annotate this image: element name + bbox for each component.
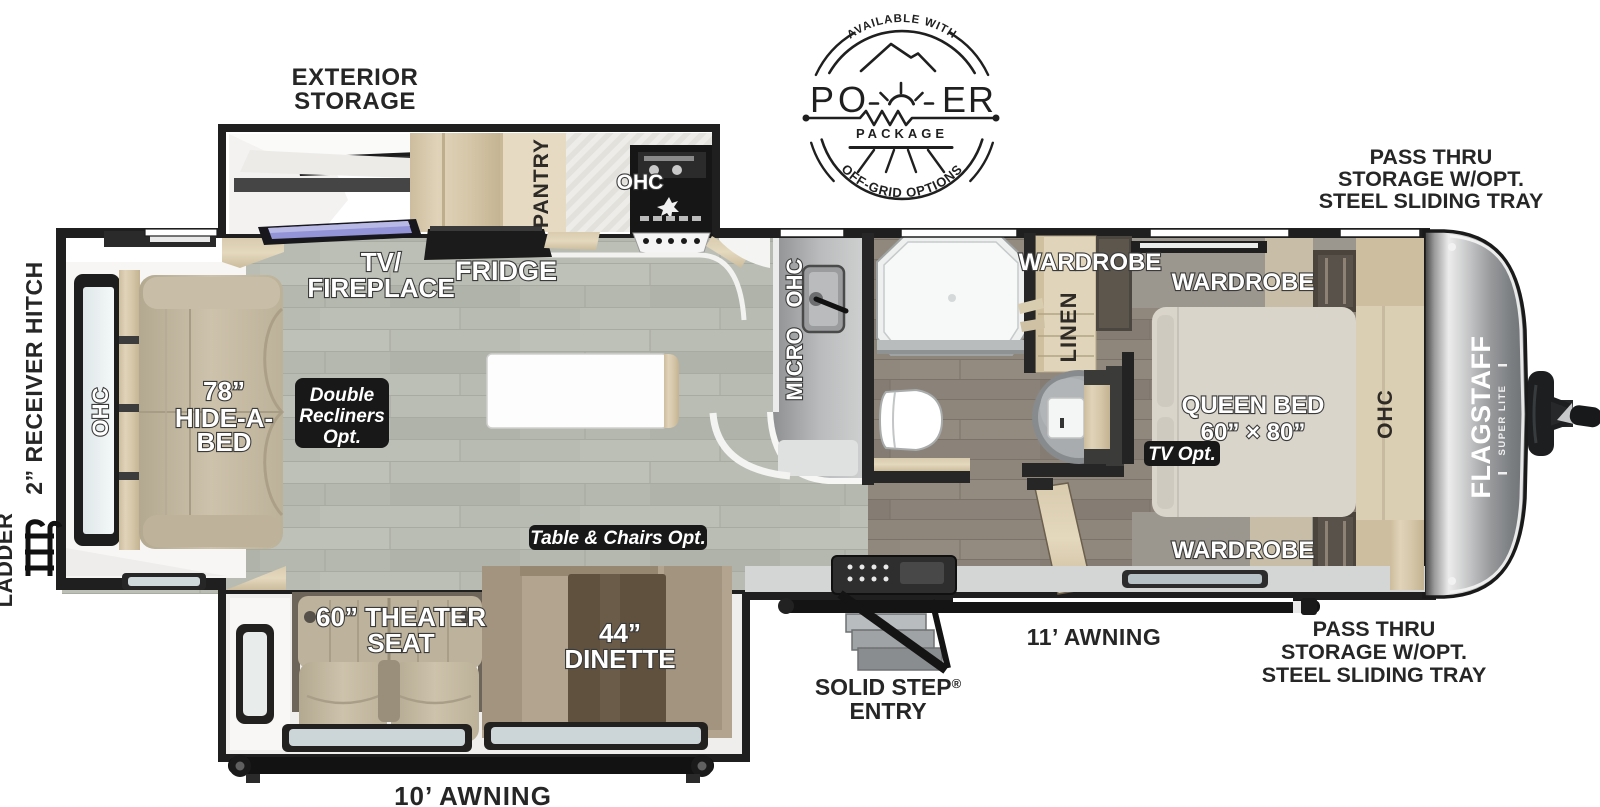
svg-text:WARDROBE: WARDROBE xyxy=(1019,249,1162,276)
svg-text:11’ AWNING: 11’ AWNING xyxy=(1027,624,1162,650)
svg-text:LINEN: LINEN xyxy=(1056,292,1081,363)
svg-text:Recliners: Recliners xyxy=(299,406,385,427)
svg-text:Opt.: Opt. xyxy=(323,427,361,448)
svg-text:SUPER LITE: SUPER LITE xyxy=(1497,385,1508,456)
svg-text:STEEL SLIDING TRAY: STEEL SLIDING TRAY xyxy=(1319,189,1544,213)
svg-text:WARDROBE: WARDROBE xyxy=(1172,537,1315,564)
svg-text:STEEL SLIDING TRAY: STEEL SLIDING TRAY xyxy=(1262,663,1487,687)
svg-text:10’ AWNING: 10’ AWNING xyxy=(394,781,552,807)
svg-text:PASS THRU: PASS THRU xyxy=(1313,617,1436,641)
svg-text:WARDROBE: WARDROBE xyxy=(1172,269,1315,296)
svg-text:OHC: OHC xyxy=(1374,389,1397,439)
svg-text:FIREPLACE: FIREPLACE xyxy=(307,273,454,303)
svg-text:STORAGE W/OPT.: STORAGE W/OPT. xyxy=(1338,167,1524,191)
svg-text:FLAGSTAFF: FLAGSTAFF xyxy=(1466,336,1496,499)
svg-text:ER: ER xyxy=(942,79,996,120)
svg-text:SEAT: SEAT xyxy=(367,628,435,658)
svg-text:MICRO: MICRO xyxy=(782,327,807,400)
svg-text:LADDER: LADDER xyxy=(0,513,17,608)
svg-text:BED: BED xyxy=(197,427,252,457)
svg-text:PO: PO xyxy=(810,79,870,120)
svg-text:EXTERIOR: EXTERIOR xyxy=(292,64,419,91)
svg-text:2” RECEIVER HITCH: 2” RECEIVER HITCH xyxy=(21,261,47,494)
svg-text:ENTRY: ENTRY xyxy=(849,698,926,724)
svg-text:SOLID STEP®: SOLID STEP® xyxy=(815,674,962,700)
svg-text:78”: 78” xyxy=(203,376,245,406)
svg-text:STORAGE W/OPT.: STORAGE W/OPT. xyxy=(1281,640,1467,664)
svg-text:FRIDGE: FRIDGE xyxy=(455,256,557,286)
svg-text:PANTRY: PANTRY xyxy=(530,138,553,228)
svg-text:Double: Double xyxy=(310,385,375,406)
svg-text:Table & Chairs Opt.: Table & Chairs Opt. xyxy=(530,528,706,549)
svg-text:DINETTE: DINETTE xyxy=(564,644,675,674)
svg-text:OHC: OHC xyxy=(782,258,807,307)
svg-text:STORAGE: STORAGE xyxy=(294,88,416,115)
svg-text:PACKAGE: PACKAGE xyxy=(856,126,948,141)
svg-text:OHC: OHC xyxy=(88,387,113,436)
svg-text:TV Opt.: TV Opt. xyxy=(1148,444,1216,465)
svg-text:QUEEN BED: QUEEN BED xyxy=(1182,392,1325,419)
svg-text:OHC: OHC xyxy=(617,171,664,194)
svg-text:PASS THRU: PASS THRU xyxy=(1370,145,1493,169)
